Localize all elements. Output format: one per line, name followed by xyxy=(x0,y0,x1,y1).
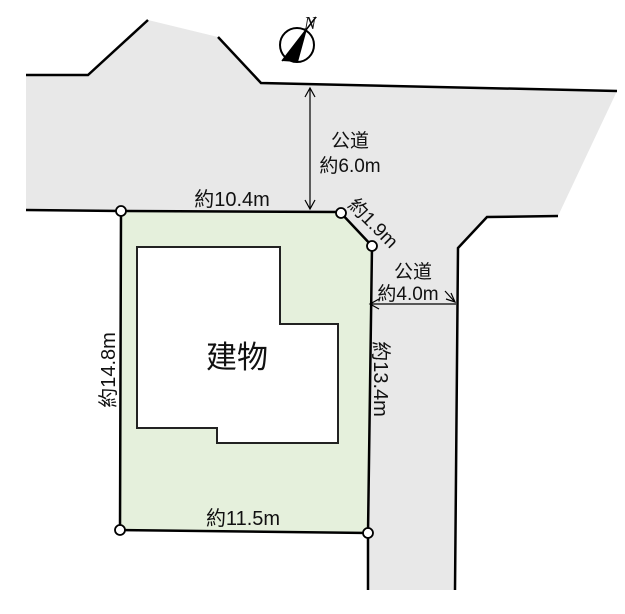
road-boundary-right-strip xyxy=(455,216,558,590)
road-boundary-top-right xyxy=(218,37,617,91)
road-top-width-label: 約6.0m xyxy=(319,155,380,177)
boundary-left-label: 約14.8m xyxy=(97,332,120,408)
vertex-bottom-right xyxy=(363,528,373,538)
boundary-right-label: 約13.4m xyxy=(369,341,392,417)
road-side-type-label: 公道 xyxy=(394,261,432,283)
site-plan-svg: 建物 公道 約6.0m 公道 約4.0m 約10.4m 約1.9m 約14.8m… xyxy=(0,0,625,614)
road-top-type-label: 公道 xyxy=(331,130,369,152)
vertex-top-left xyxy=(116,206,126,216)
plot-diagram: 建物 公道 約6.0m 公道 約4.0m 約10.4m 約1.9m 約14.8m… xyxy=(0,0,625,614)
boundary-bottom-label: 約11.5m xyxy=(206,507,280,530)
road-side-width-label: 約4.0m xyxy=(377,283,438,305)
vertex-chamfer xyxy=(367,241,377,251)
building-label: 建物 xyxy=(206,340,268,375)
north-compass-icon: N xyxy=(280,13,317,62)
vertex-bottom-left xyxy=(115,525,125,535)
vertex-top-right xyxy=(336,208,346,218)
road-boundary-bottom-left xyxy=(26,210,121,211)
boundary-top-label: 約10.4m xyxy=(194,188,270,211)
north-label: N xyxy=(303,13,317,33)
